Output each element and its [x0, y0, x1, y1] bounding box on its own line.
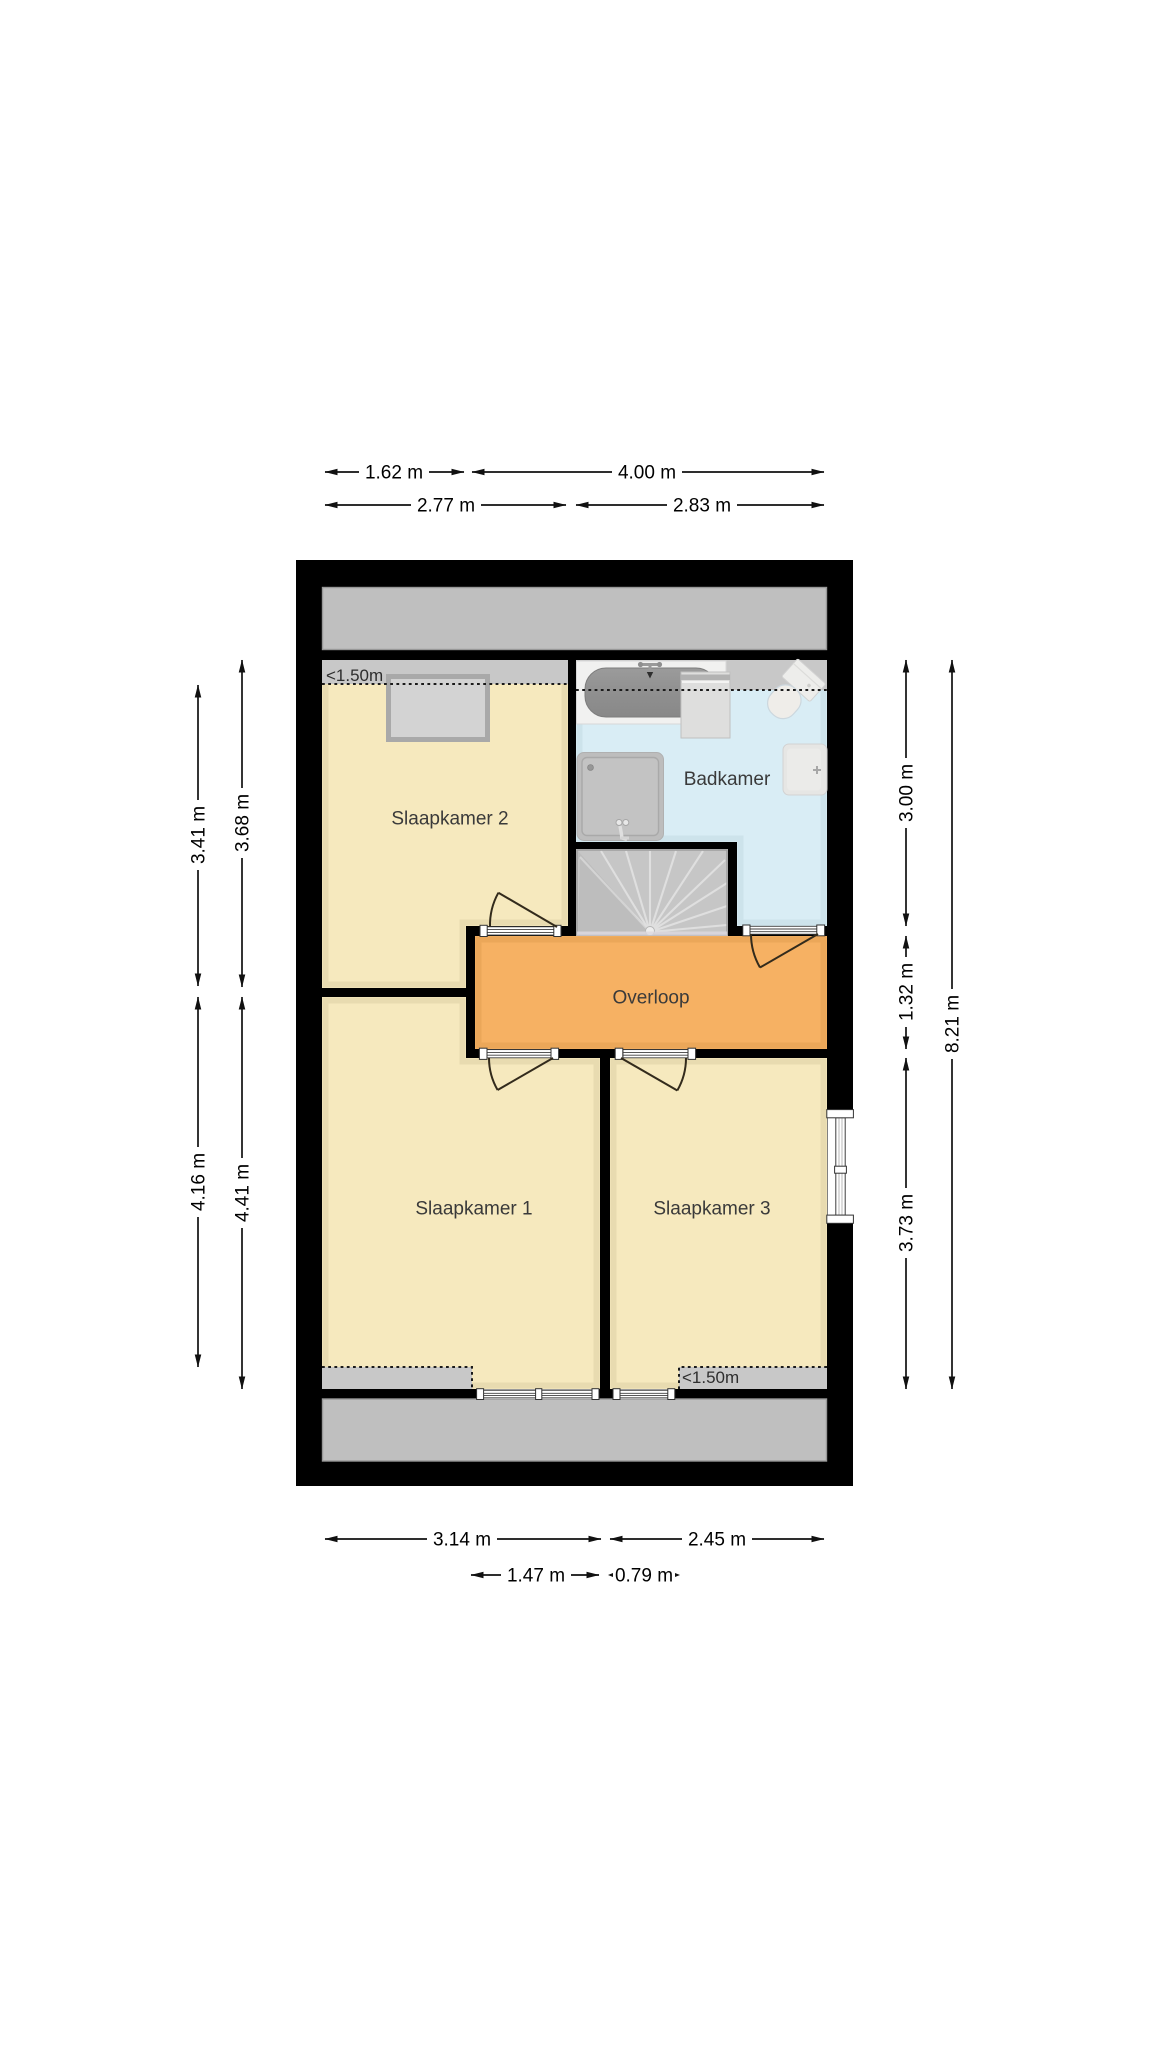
- svg-text:Slaapkamer 2: Slaapkamer 2: [391, 809, 508, 830]
- svg-text:Overloop: Overloop: [612, 988, 689, 1009]
- svg-text:8.21 m: 8.21 m: [943, 995, 964, 1053]
- svg-text:2.83 m: 2.83 m: [673, 496, 731, 517]
- svg-text:1.32 m: 1.32 m: [897, 963, 918, 1021]
- svg-text:1.62 m: 1.62 m: [365, 463, 423, 484]
- svg-text:3.41 m: 3.41 m: [189, 806, 210, 864]
- svg-text:Slaapkamer 3: Slaapkamer 3: [653, 1199, 770, 1220]
- svg-text:4.16 m: 4.16 m: [189, 1153, 210, 1211]
- svg-text:0.79 m: 0.79 m: [615, 1566, 673, 1587]
- svg-text:2.77 m: 2.77 m: [417, 496, 475, 517]
- svg-text:Badkamer: Badkamer: [684, 769, 771, 790]
- svg-text:Slaapkamer 1: Slaapkamer 1: [415, 1199, 532, 1220]
- svg-text:2.45 m: 2.45 m: [688, 1530, 746, 1551]
- svg-text:<1.50m: <1.50m: [682, 1368, 739, 1387]
- svg-text:4.41 m: 4.41 m: [233, 1164, 254, 1222]
- svg-text:1.47 m: 1.47 m: [507, 1566, 565, 1587]
- svg-text:3.00 m: 3.00 m: [897, 764, 918, 822]
- svg-text:3.73 m: 3.73 m: [897, 1194, 918, 1252]
- svg-text:3.14 m: 3.14 m: [433, 1530, 491, 1551]
- svg-text:<1.50m: <1.50m: [326, 666, 383, 685]
- svg-text:3.68 m: 3.68 m: [233, 794, 254, 852]
- svg-text:4.00 m: 4.00 m: [618, 463, 676, 484]
